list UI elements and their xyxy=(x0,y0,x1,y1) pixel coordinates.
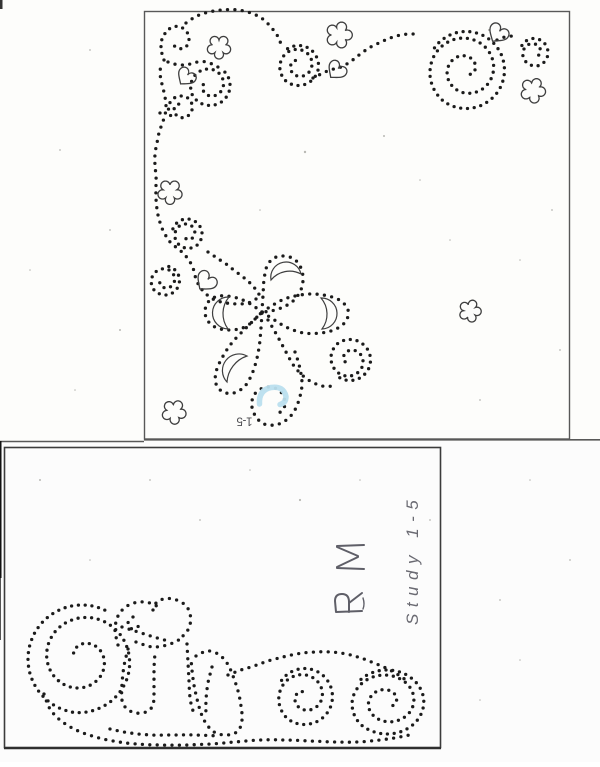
svg-text:Study 1-5: Study 1-5 xyxy=(403,494,422,625)
svg-text:1-5: 1-5 xyxy=(237,415,253,427)
